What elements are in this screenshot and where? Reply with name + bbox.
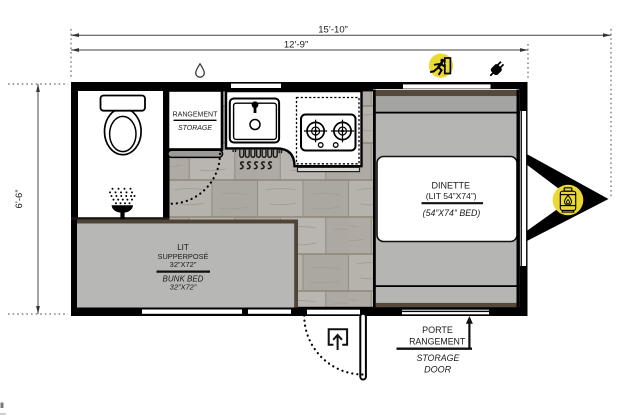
svg-text:STORAGE: STORAGE xyxy=(178,125,212,132)
svg-text:RANGEMENT: RANGEMENT xyxy=(173,112,218,119)
svg-text:32”X72”: 32”X72” xyxy=(170,260,197,269)
svg-text:(54”X74” BED): (54”X74” BED) xyxy=(423,208,481,218)
svg-text:STORAGE: STORAGE xyxy=(416,353,459,363)
svg-text:DINETTE: DINETTE xyxy=(432,181,471,191)
svg-text:DOOR: DOOR xyxy=(424,364,452,374)
svg-text:15’-10”: 15’-10” xyxy=(318,25,348,36)
svg-text:32”X72”: 32”X72” xyxy=(170,282,197,291)
svg-text:RANGEMENT: RANGEMENT xyxy=(409,336,466,346)
svg-text:6’-6”: 6’-6” xyxy=(14,189,25,208)
svg-text:(LIT 54”X74”): (LIT 54”X74”) xyxy=(426,191,477,201)
svg-text:PORTE: PORTE xyxy=(422,325,453,335)
svg-text:LIT: LIT xyxy=(177,243,189,252)
svg-text:12’-9”: 12’-9” xyxy=(284,39,308,50)
